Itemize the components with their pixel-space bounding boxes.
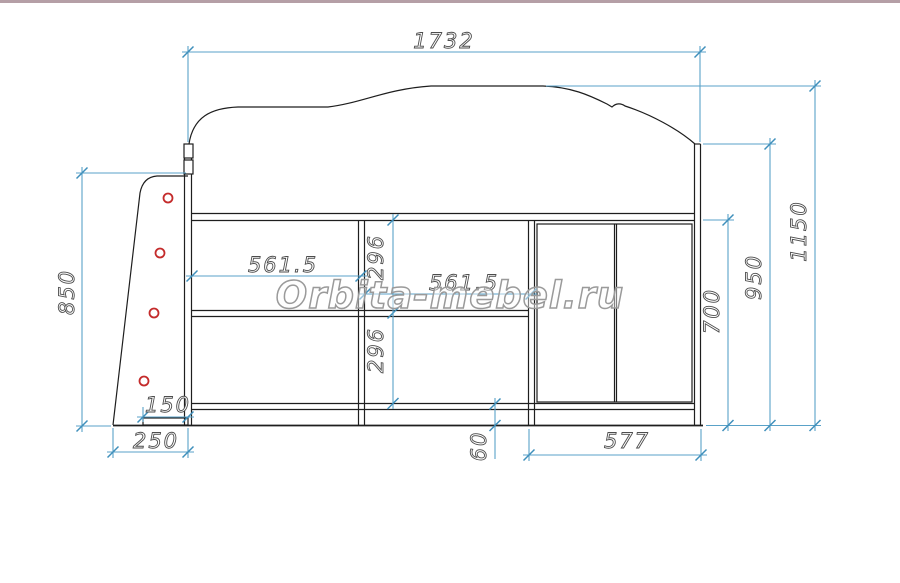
dim-under-bed-clearance-label: 700 <box>700 288 724 334</box>
ladder-outline <box>113 176 188 425</box>
dim-plinth-height-label: 60 <box>467 431 491 462</box>
drawing-page: 1732 850 1150 950 <box>0 0 900 583</box>
bed-deck <box>192 214 695 221</box>
dim-total-width-label: 1732 <box>413 29 474 53</box>
furniture-drawing-canvas: 1732 850 1150 950 <box>0 0 900 583</box>
ladder-hole-3 <box>150 309 159 318</box>
dim-overall-height: 1150 <box>546 80 821 431</box>
ladder-hole-4 <box>140 377 149 386</box>
dim-lower-shelf-height: 296 <box>364 308 399 409</box>
page-top-border <box>0 0 900 3</box>
dim-overall-height-label: 1150 <box>787 200 811 261</box>
ladder-bottom-step <box>143 418 188 425</box>
right-side-panel <box>695 144 701 425</box>
ladder <box>113 144 193 425</box>
plinth <box>192 404 695 410</box>
ladder-hole-1 <box>164 194 173 203</box>
dim-bed-side-height: 950 <box>703 138 776 431</box>
dimensions-layer: 1732 850 1150 950 <box>55 29 821 461</box>
ladder-hook-lower <box>184 160 193 174</box>
ladder-hole-2 <box>156 249 165 258</box>
dim-wardrobe-width: 577 <box>523 429 707 461</box>
dim-ladder-height-label: 850 <box>55 269 79 315</box>
ladder-hook-upper <box>184 144 193 158</box>
headboard-curve <box>189 86 695 144</box>
dim-lower-shelf-height-label: 296 <box>364 327 388 373</box>
dim-ladder-step-label: 150 <box>145 393 191 417</box>
watermark-text: Orbita-mebel.ru <box>276 274 624 317</box>
dim-ladder-base-label: 250 <box>133 429 179 453</box>
dim-under-bed-clearance: 700 <box>700 214 734 431</box>
dim-plinth-height: 60 <box>467 398 501 461</box>
dim-wardrobe-width-label: 577 <box>604 429 650 453</box>
left-side-panel <box>185 144 192 425</box>
dim-bed-side-height-label: 950 <box>742 254 766 300</box>
dim-ladder-base: 250 <box>107 428 194 458</box>
drawing-structure <box>113 86 703 426</box>
wardrobe-left-wall <box>529 221 535 426</box>
